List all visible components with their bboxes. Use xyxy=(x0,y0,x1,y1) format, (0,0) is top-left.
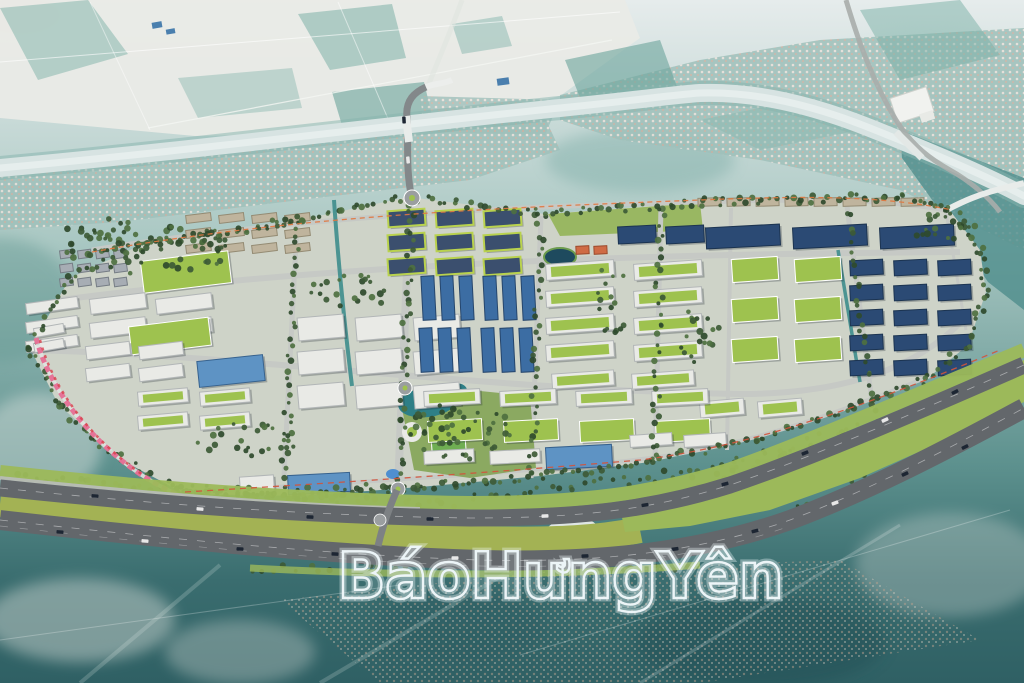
building-white-grid-cl xyxy=(297,382,347,411)
building-greenroof-cr xyxy=(731,336,781,364)
building-white-grid-cl xyxy=(297,348,347,377)
building-lime-grid xyxy=(483,209,523,230)
building-solar-c3 xyxy=(457,328,472,373)
building-solar-c2 xyxy=(483,276,498,321)
building-lime-grid xyxy=(435,233,475,254)
building-navy-right xyxy=(894,259,930,278)
building-solar-c3 xyxy=(438,328,453,373)
building-navy-pair xyxy=(618,225,659,246)
building-bottom-green xyxy=(579,418,636,444)
building-navy-pair xyxy=(666,225,707,246)
vehicle xyxy=(306,515,313,519)
building-greenroof-cr xyxy=(794,336,844,364)
vehicle xyxy=(236,547,243,551)
building-navy-right xyxy=(938,259,974,278)
building-greenroof-cr xyxy=(794,296,844,324)
building-residential-nw xyxy=(60,263,74,273)
building-lime-grid xyxy=(387,257,427,278)
vehicle xyxy=(141,539,148,543)
watermark: BáoHưngYên BáoHưngYên xyxy=(337,540,783,614)
building-solar-c2 xyxy=(502,276,517,321)
building-navy-right xyxy=(938,309,974,328)
scene-svg: BáoHưngYên BáoHưngYên xyxy=(0,0,1024,683)
building-navy-right xyxy=(938,284,974,303)
building-residential-nw xyxy=(78,277,92,287)
building-lime-grid xyxy=(435,257,475,278)
building-navy-right xyxy=(894,309,930,328)
building-lime-grid xyxy=(483,257,523,278)
vehicle xyxy=(56,530,63,534)
vehicle xyxy=(406,156,410,163)
building-navy-right xyxy=(894,334,930,353)
building-solar-c1 xyxy=(459,276,474,321)
vehicle xyxy=(196,507,203,511)
building-greenroof-cr xyxy=(731,256,781,284)
building-white-grid-cl xyxy=(297,314,347,343)
vehicle xyxy=(541,514,548,518)
building-solar-c1 xyxy=(421,276,436,321)
vehicle xyxy=(91,494,98,498)
vehicle xyxy=(426,517,433,521)
building-navy-top-row xyxy=(706,224,783,251)
building-solar-c4 xyxy=(500,328,515,373)
aerial-render-image: BáoHưngYên BáoHưngYên xyxy=(0,0,1024,683)
building-residential-nw xyxy=(96,277,110,287)
building-solar-c2 xyxy=(521,276,536,321)
building-navy-right xyxy=(894,359,930,378)
building-white-grid-cl xyxy=(355,382,405,411)
building-navy-right xyxy=(894,284,930,303)
vehicle xyxy=(402,116,406,123)
watermark-text: BáoHưngYên xyxy=(337,540,783,614)
building-white-grid-cl xyxy=(355,348,405,377)
building-bottom-white xyxy=(424,388,483,408)
frontage-roundabout xyxy=(374,514,386,526)
building-navy-right xyxy=(850,309,886,328)
building-bottom-white xyxy=(500,388,559,408)
building-residential-nw xyxy=(114,277,128,287)
building-solar-c3 xyxy=(419,328,434,373)
building-white-grid-cl xyxy=(355,314,405,343)
building-utility-orange xyxy=(594,246,607,255)
building-solar-c1 xyxy=(440,276,455,321)
building-navy-top-row xyxy=(793,224,870,251)
building-solar-c4 xyxy=(481,328,496,373)
building-lime-grid xyxy=(387,233,427,254)
building-warehouse-gate xyxy=(545,444,614,472)
access-road-bridge xyxy=(406,116,409,142)
building-lime-grid xyxy=(483,233,523,254)
building-utility-orange xyxy=(576,246,589,255)
building-greenroof-cr xyxy=(794,256,844,284)
building-bottom-white xyxy=(576,388,635,408)
building-greenroof-cr xyxy=(731,296,781,324)
